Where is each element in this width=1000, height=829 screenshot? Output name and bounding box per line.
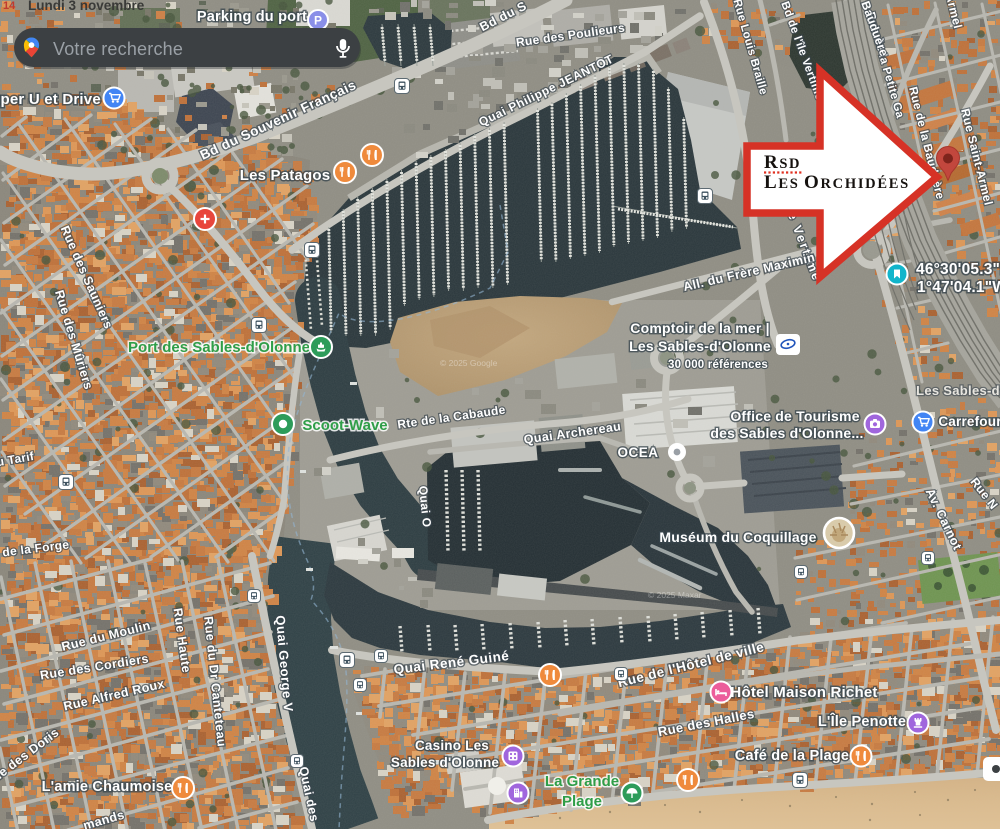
svg-text:Comptoir de la mer |: Comptoir de la mer | xyxy=(630,320,769,336)
svg-text:Quai O: Quai O xyxy=(416,485,434,528)
svg-text:Rue des Cordiers: Rue des Cordiers xyxy=(39,652,150,683)
svg-text:Port des Sables-d'Olonne: Port des Sables-d'Olonne xyxy=(128,339,310,356)
svg-text:La Grande: La Grande xyxy=(545,773,619,790)
svg-text:e de la Forge: e de la Forge xyxy=(0,537,70,560)
svg-text:Parking du port: Parking du port xyxy=(197,9,307,25)
svg-text:Les Sables-d'Olonne: Les Sables-d'Olonne xyxy=(629,338,771,354)
svg-text:RSD: RSD xyxy=(764,152,801,173)
svg-text:Quai René Guiné: Quai René Guiné xyxy=(393,648,510,677)
svg-text:Quai Archereau: Quai Archereau xyxy=(523,419,622,447)
svg-text:Quai Philippe JEANTOT: Quai Philippe JEANTOT xyxy=(476,52,616,130)
svg-text:LESORCHIDÉES: LESORCHIDÉES xyxy=(764,172,910,193)
svg-text:L'Île Penotte: L'Île Penotte xyxy=(818,712,906,730)
svg-text:Votre recherche: Votre recherche xyxy=(53,39,183,59)
svg-text:Rue Louis Braille: Rue Louis Braille xyxy=(730,0,769,96)
svg-text:Bd du Souvenir Français: Bd du Souvenir Français xyxy=(198,77,359,163)
svg-text:des Sables d'Olonne...: des Sables d'Olonne... xyxy=(710,425,863,441)
svg-text:Rue Haute: Rue Haute xyxy=(170,607,193,674)
svg-text:Armel: Armel xyxy=(943,0,965,30)
svg-text:mands: mands xyxy=(82,808,127,829)
svg-text:Plage: Plage xyxy=(562,793,602,810)
svg-text:30 000 références: 30 000 références xyxy=(668,359,768,371)
svg-text:Rue de l'Hôtel de ville: Rue de l'Hôtel de ville xyxy=(616,639,766,690)
svg-text:1°47'04.1"W -: 1°47'04.1"W - xyxy=(917,279,1000,296)
svg-text:P: P xyxy=(314,14,322,28)
svg-text:All. du Frère Maximin: All. du Frère Maximin xyxy=(682,250,817,294)
svg-text:14: 14 xyxy=(3,0,16,12)
svg-text:Bd du S: Bd du S xyxy=(477,0,529,34)
svg-text:Quai des: Quai des xyxy=(296,765,321,823)
svg-text:Casino Les: Casino Les xyxy=(415,738,489,753)
svg-text:Scoot-Wave: Scoot-Wave xyxy=(302,417,387,434)
svg-text:uper U et Drive: uper U et Drive xyxy=(0,91,101,108)
svg-text:u Tarif: u Tarif xyxy=(0,449,36,469)
svg-text:Rte de la Cabaude: Rte de la Cabaude xyxy=(396,403,506,432)
svg-text:Quai George V: Quai George V xyxy=(273,615,296,713)
svg-text:Rue du Dr Canteteau: Rue du Dr Canteteau xyxy=(201,616,229,748)
svg-text:Rue Saint-Armel: Rue Saint-Armel xyxy=(958,107,996,207)
svg-text:Rue des Poulieurs: Rue des Poulieurs xyxy=(515,20,626,49)
svg-text:Muséum du Coquillage: Muséum du Coquillage xyxy=(659,529,816,545)
svg-text:Rue du Moulin: Rue du Moulin xyxy=(60,618,152,654)
svg-text:Rue des Halles: Rue des Halles xyxy=(657,706,756,739)
svg-text:Sables d'Olonne: Sables d'Olonne xyxy=(391,755,500,770)
svg-text:Les Sables-d: Les Sables-d xyxy=(916,383,1000,398)
svg-text:Hôtel Maison Richet: Hôtel Maison Richet xyxy=(730,684,877,701)
svg-text:OCEA: OCEA xyxy=(617,445,658,460)
svg-text:46°30'05.3"N: 46°30'05.3"N xyxy=(916,261,1000,278)
svg-text:Rue Alfred Roux: Rue Alfred Roux xyxy=(62,677,166,714)
svg-text:Av. Carnot: Av. Carnot xyxy=(923,486,965,552)
svg-text:ue des Doris: ue des Doris xyxy=(0,725,62,784)
svg-text:Office de Tourisme: Office de Tourisme xyxy=(730,408,859,424)
svg-text:Lundi 3 novembre: Lundi 3 novembre xyxy=(28,0,145,13)
svg-text:Les Patagos: Les Patagos xyxy=(240,167,331,184)
svg-text:Rue N: Rue N xyxy=(968,475,1000,512)
svg-text:Rue des Mûriers: Rue des Mûriers xyxy=(52,288,96,391)
svg-text:Café de la Plage: Café de la Plage xyxy=(735,748,849,764)
svg-text:L'amie Chaumoise: L'amie Chaumoise xyxy=(42,779,173,795)
svg-text:Carrefour: Carrefour xyxy=(938,414,1000,429)
